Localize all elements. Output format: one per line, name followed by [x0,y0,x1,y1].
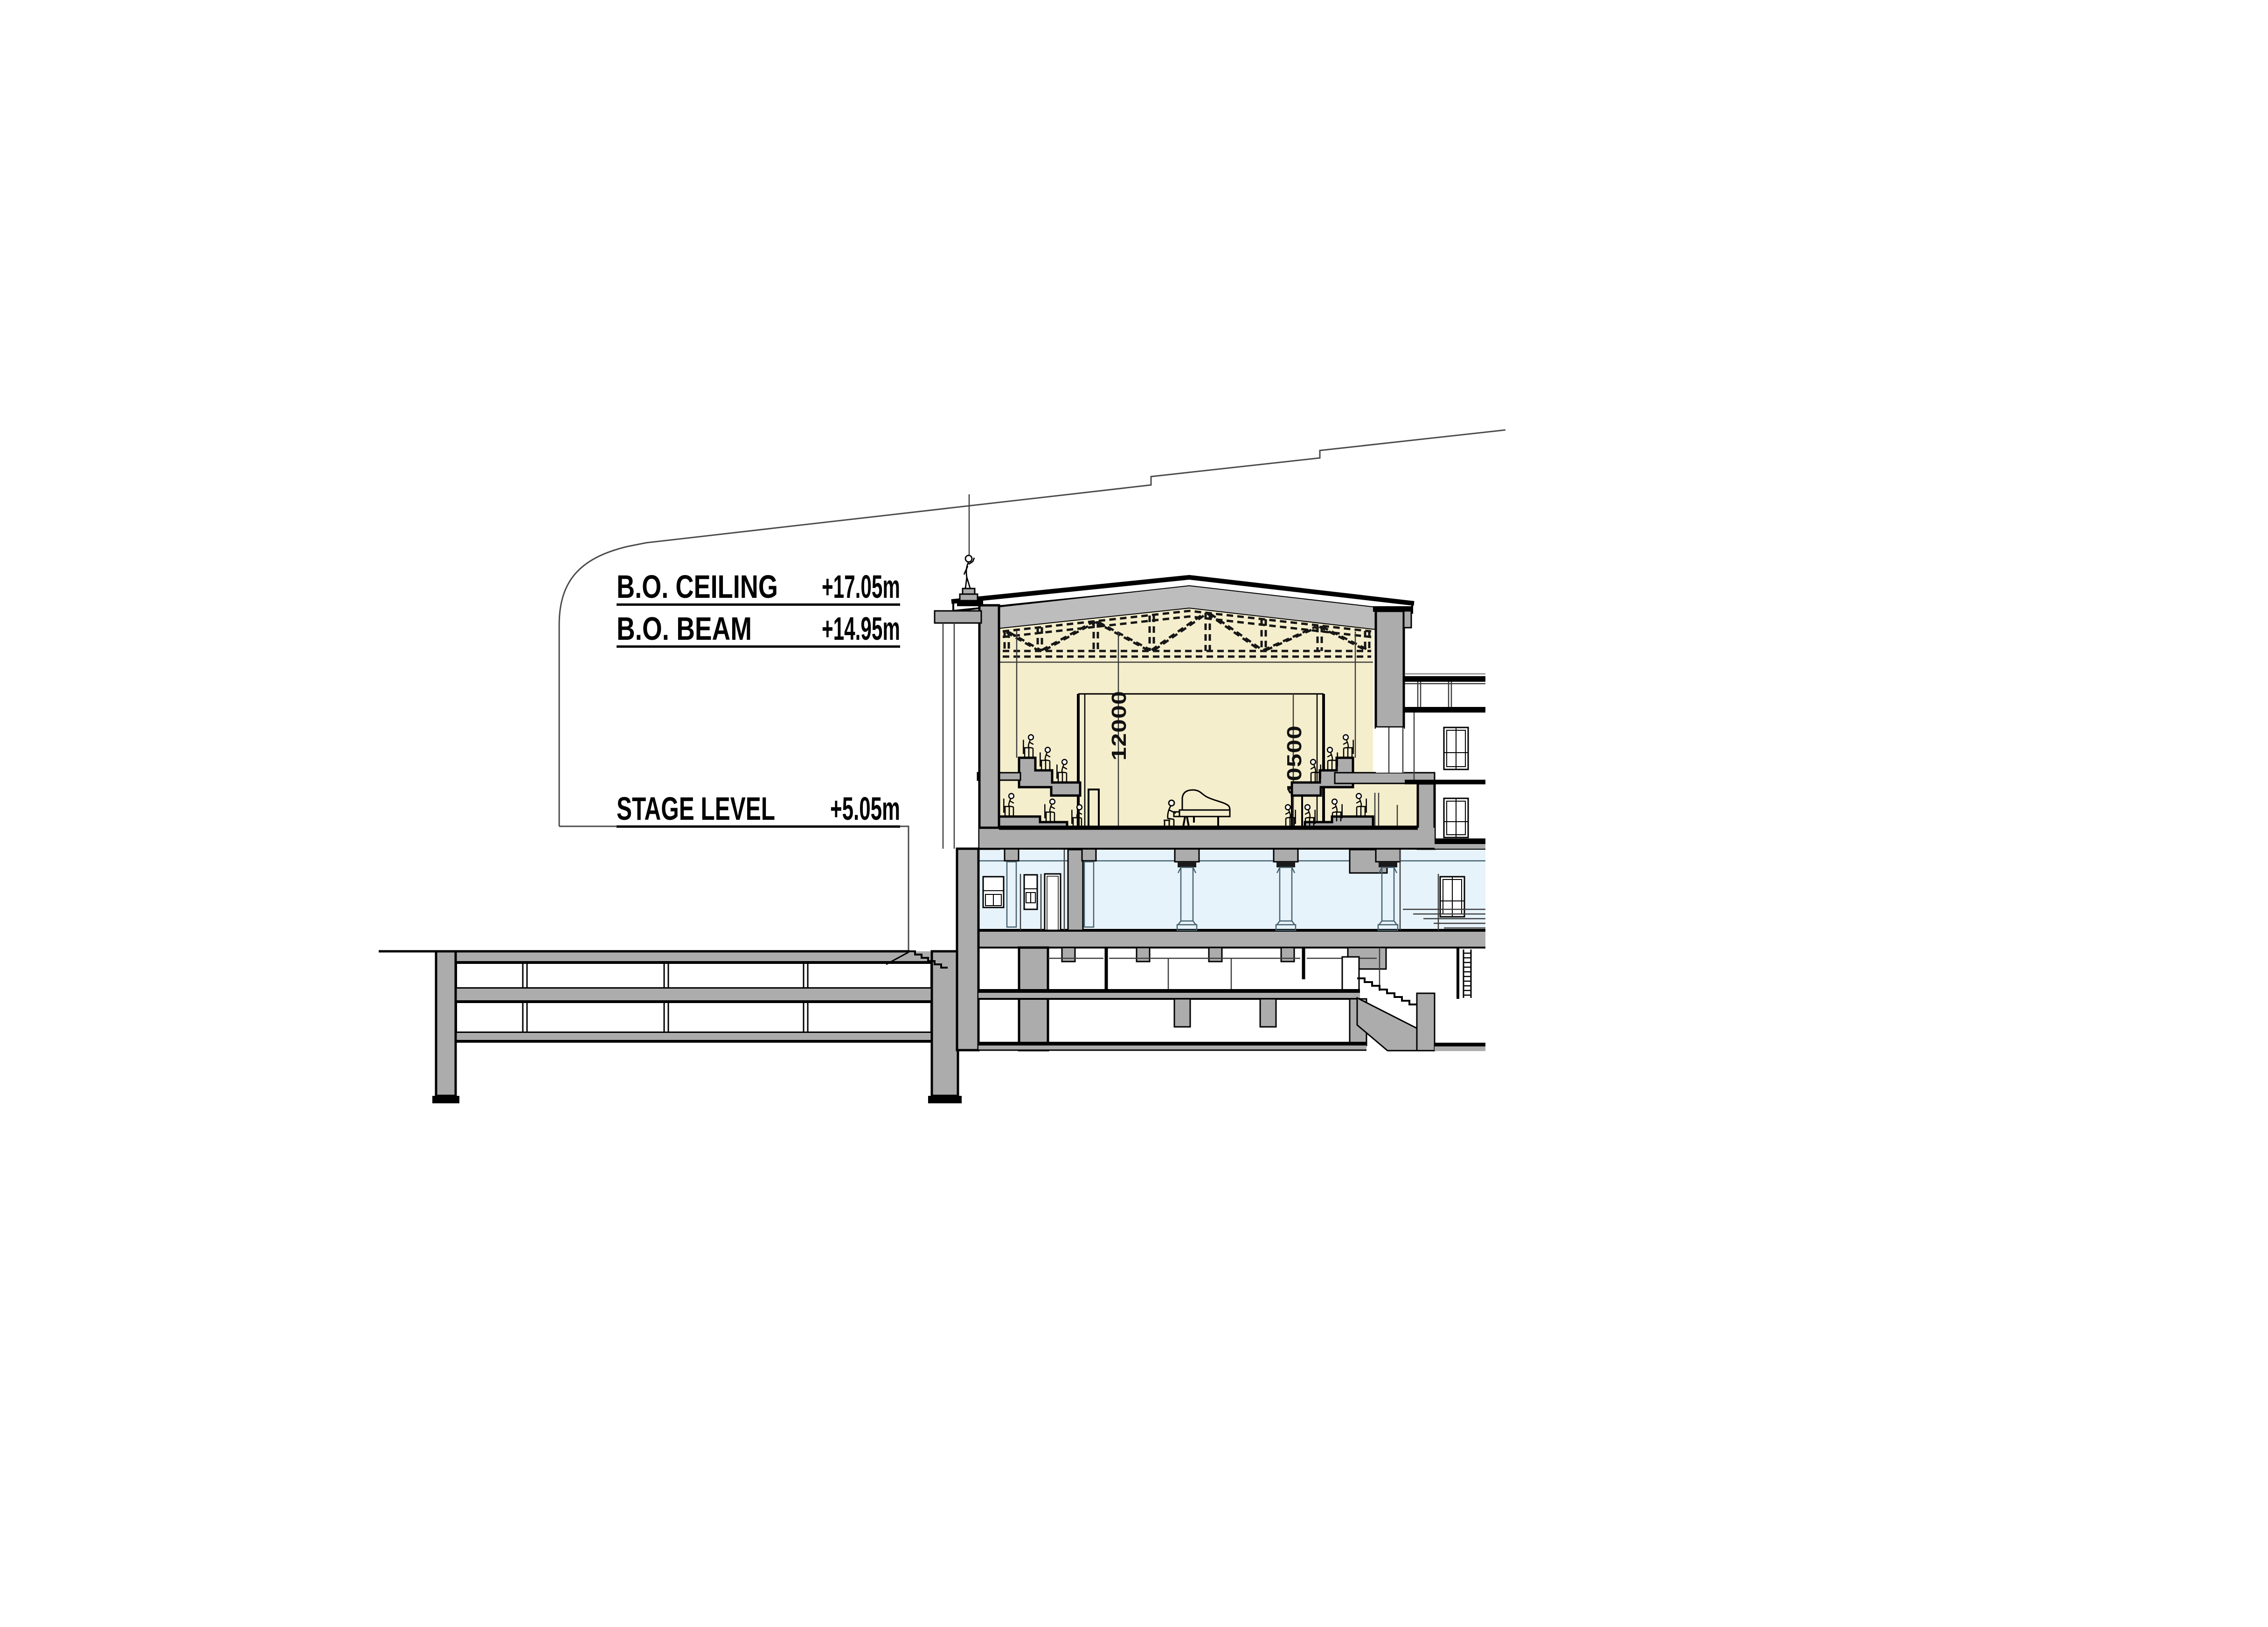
column-abacus [1379,862,1397,867]
bo-ceiling-value: +17.05m [822,568,900,605]
stage-left-wall [979,605,999,849]
stage-right-cornice [1404,611,1411,628]
wing-floor-slab [1435,838,1485,844]
bo-beam-underline [617,645,900,648]
stage-right-wall-upper [1376,611,1404,727]
stage-right-wall-gap [1376,727,1404,773]
basement2-pier [1174,999,1190,1027]
foyer-window [983,877,1004,907]
wing-floor-slab [1405,780,1485,784]
garage-left-wall [436,951,456,1096]
column-abacus [1178,862,1196,867]
foyer-window [1024,875,1037,909]
wing-window [1444,798,1468,838]
basement-downstand [1209,948,1222,962]
garage-left-footing [432,1096,459,1103]
foyer-window [1440,877,1464,917]
column-downstand [1175,849,1199,862]
column-downstand [1274,849,1298,862]
deep-basement-floor [1435,1046,1485,1051]
garage-roof-slab [436,951,958,962]
stage-floor-slab [979,828,1435,849]
stage-left-wall-cap [957,601,983,606]
bo-beam-label: B.O. BEAM [617,610,752,647]
statue-head [965,555,972,562]
garage-mid-slab [456,989,932,1002]
foyer-level [957,849,1485,948]
basement-downstand [1281,948,1294,962]
bo-ceiling-label: B.O. CEILING [617,568,778,605]
statue-pedestal-base [960,594,978,601]
pianist-head [1169,800,1174,806]
pilaster-downstand [1005,849,1019,861]
wing-roof-slab [1405,676,1485,682]
basement-downstand [1137,948,1150,962]
basement-door [1342,957,1359,991]
dim-text-stage-height: 12000 [1108,691,1131,761]
drawing-sheet: B.O. CEILING +17.05m B.O. BEAM +14.95m S… [0,0,2268,1627]
stage-level-underline [617,825,900,828]
column-abacus [1276,862,1295,867]
stage-level-label: STAGE LEVEL [617,790,775,827]
garage-right-pier [932,951,958,1096]
foyer-door [1045,874,1061,930]
architectural-section-drawing: B.O. CEILING +17.05m B.O. BEAM +14.95m S… [0,0,2268,1627]
wing-window [1444,727,1468,769]
bo-beam-value: +14.95m [822,610,900,647]
basement-downstand [1062,948,1075,962]
wing-floor-slab [1405,707,1485,713]
stage-level-value: +5.05m [830,790,900,827]
basement2-pier [1260,999,1276,1027]
wing-floor-gray [1435,844,1485,849]
side-stage-volume [1373,783,1418,828]
pilaster-downstand [1082,849,1096,861]
stage-left-cornice [935,611,981,623]
statue-pedestal-top [963,588,975,594]
garage-right-footing [928,1096,962,1103]
foyer-floor-slab [957,930,1485,948]
bo-ceiling-underline [617,603,900,606]
front-wall [957,849,978,1050]
column-downstand [1376,849,1400,862]
foyer-wall-pier [1068,850,1083,930]
stair-wall [1417,993,1435,1051]
